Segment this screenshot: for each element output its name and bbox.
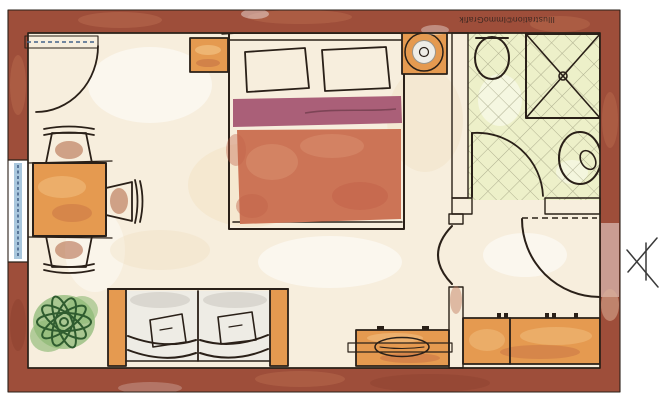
nightstand-left — [190, 38, 228, 72]
sofa-armrest-left — [108, 289, 126, 366]
sideboard — [348, 326, 452, 366]
entrance-opening — [601, 223, 619, 297]
dining-table — [28, 161, 112, 238]
window-left — [8, 160, 28, 262]
floor-plan-drawing: Illustration©ImmoGrafik — [0, 0, 661, 400]
sofa-armrest-right — [270, 289, 288, 366]
credit-watermark: Illustration©ImmoGrafik — [459, 15, 555, 25]
floor-plan: Illustration©ImmoGrafik — [0, 0, 661, 400]
nightstand-right — [402, 32, 447, 74]
sofa — [108, 289, 288, 366]
wardrobe — [463, 313, 600, 364]
wall-right — [600, 10, 620, 392]
bathroom-floor — [468, 33, 600, 200]
